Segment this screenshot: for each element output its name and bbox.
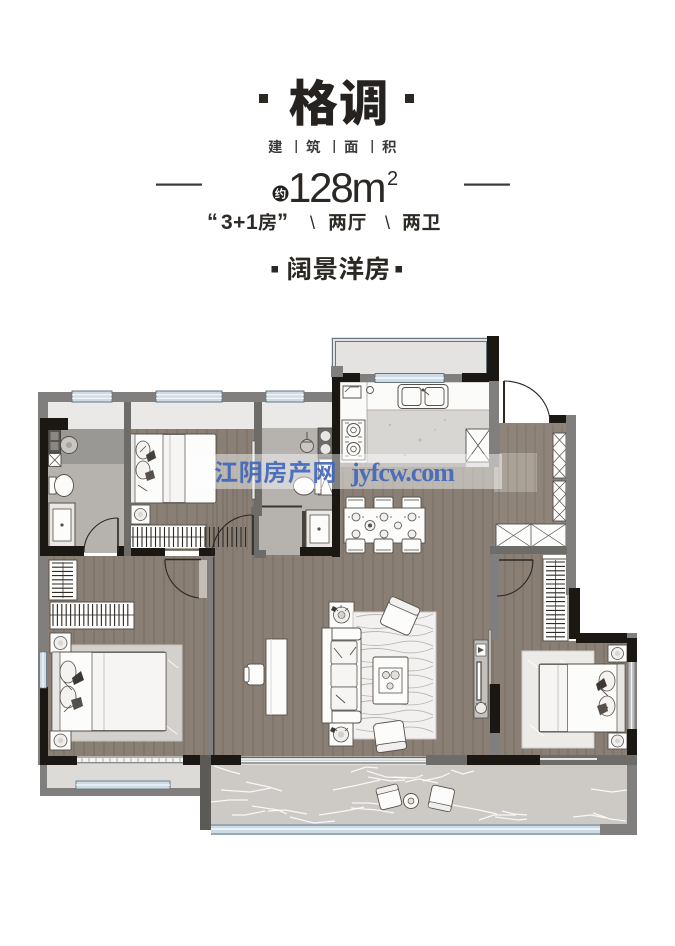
svg-text:\: \ [310,213,315,233]
svg-text:2: 2 [387,168,398,190]
svg-text:”: ” [277,209,288,234]
svg-text:3+1: 3+1 [221,211,258,234]
svg-text:jyfcw.com: jyfcw.com [350,458,455,487]
svg-text:“: “ [207,209,218,234]
svg-text:128m: 128m [288,164,384,211]
svg-text:\: \ [385,213,390,233]
